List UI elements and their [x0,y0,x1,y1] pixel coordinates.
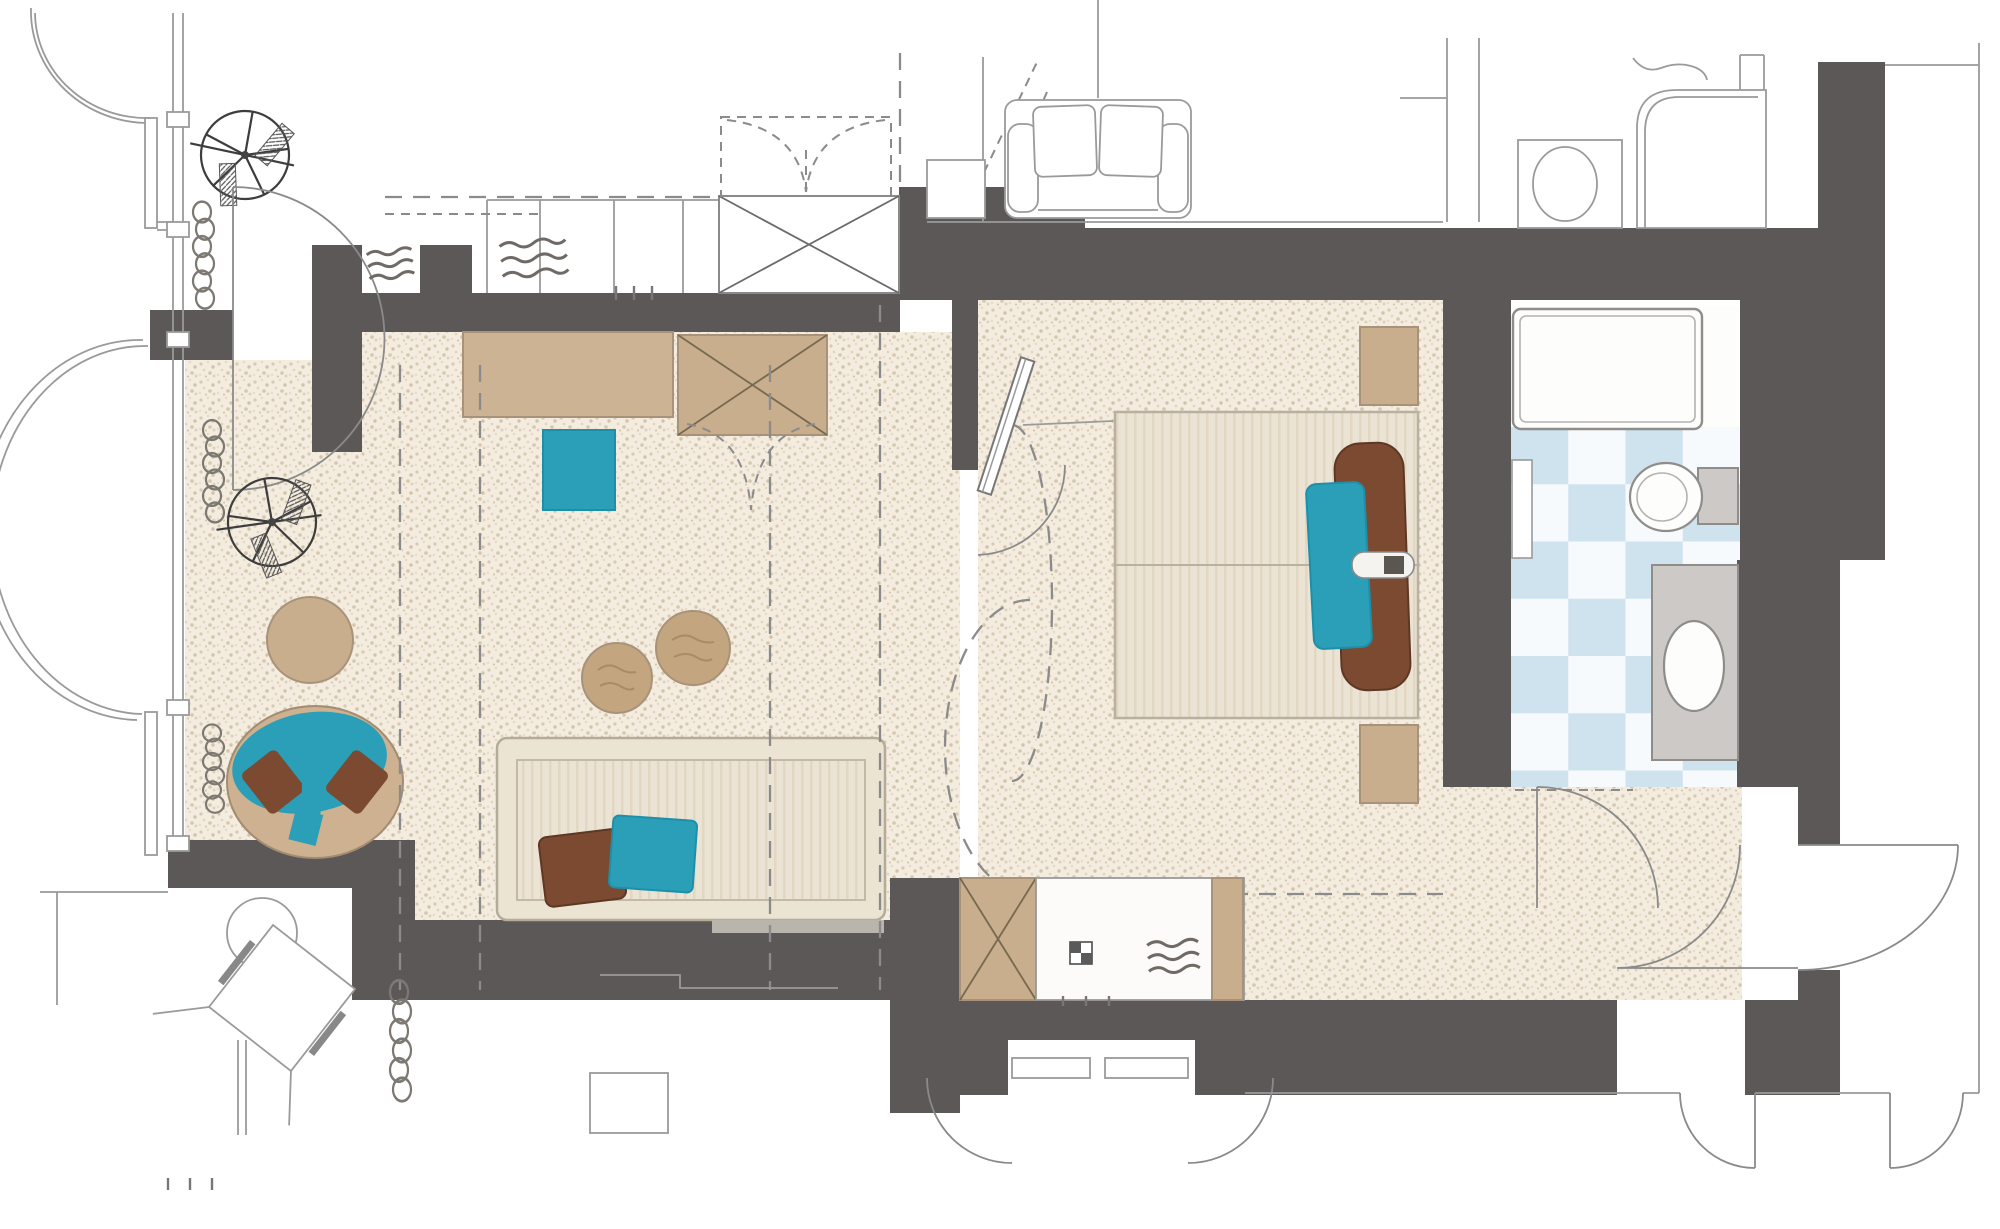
corridor-east-wall-line [1885,43,1979,1093]
neighbor-loveseat [1005,100,1191,218]
wall-corridor-block [890,878,960,1113]
bay-semicircle-outer [0,340,143,720]
neighbor-toilet-bowl [1533,147,1597,221]
wall-bottom-kitchenette-l [960,1040,1008,1095]
window-wall-lines [173,13,183,845]
window-lower [145,712,157,855]
wall-sitting-top-left [150,310,233,360]
nightstand-top [1360,327,1418,405]
wall-bottom-entry [1250,1000,1617,1095]
toilet [1630,463,1738,531]
corridor-small-rect [590,1073,668,1133]
toilet-tank [1698,468,1738,524]
kitchenette-tan-end [1212,878,1243,1000]
entry-door-swing [1798,845,1958,970]
sofa-shadow [712,920,884,933]
wall-bottom-kitchenette [960,1000,1250,1040]
vanity-basin [1664,621,1724,711]
wall-bedroom-top [1085,228,1818,300]
wall-ne-stub [1818,62,1885,235]
neighbor-side-table [927,160,985,218]
vent-grille-2 [499,237,568,280]
wall-living-top [362,293,900,332]
neighbor-shower [1637,90,1766,228]
wall-right-of-bath [1737,560,1840,787]
wall-right-lower [1798,970,1840,1000]
neighbor-shower-lines [1740,55,1764,90]
neighbor-curtain-squiggle [1633,58,1707,80]
wall-bottom-kitchenette-r [1195,1040,1250,1095]
bath-door-pocket [1512,460,1532,558]
floor-plan [0,0,2000,1229]
wall-bed-bath [1443,300,1511,787]
sideboard [463,332,673,417]
bottom-ticks [168,1178,212,1190]
nightstand-bottom [1360,725,1418,803]
bed-remote [1352,552,1414,578]
ceiling-fan-symbol-1 [179,100,303,219]
wall-stub-b [420,245,472,293]
window-upper [145,118,157,228]
wall-bedroom-left-stub [952,300,978,470]
window-wall-west [0,8,189,855]
radiator-coil-1 [193,202,214,309]
overhead-cabinet-arcs [727,120,885,192]
wall-stub-a [312,245,362,452]
wall-se-block [1745,1000,1840,1095]
coffee-table-large [656,611,730,685]
neighbor-double-line [238,1040,246,1135]
bathtub [1513,309,1702,429]
vanity [1652,565,1738,760]
sink-symbol [1070,942,1092,964]
wall-ne-block [1740,235,1885,560]
bed-remote-dark [1384,556,1404,574]
wall-right-upper [1798,787,1840,845]
teal-stool [543,430,615,510]
neighbor-bathroom [1518,55,1766,228]
bay-arc-top-outer [35,13,150,118]
bay-arc-top-inner [31,8,152,123]
neighbor-tilted-table [150,900,380,1125]
sofa [497,738,885,933]
wall-step-connector [352,840,415,1000]
coffee-table-small [582,643,652,713]
vent-grille-1 [366,247,414,281]
neighbor-wall-lines-left [40,892,168,1005]
sofa-teal-pillow [609,815,698,893]
round-side-table [267,597,353,683]
floor-plan-page [0,0,2000,1229]
